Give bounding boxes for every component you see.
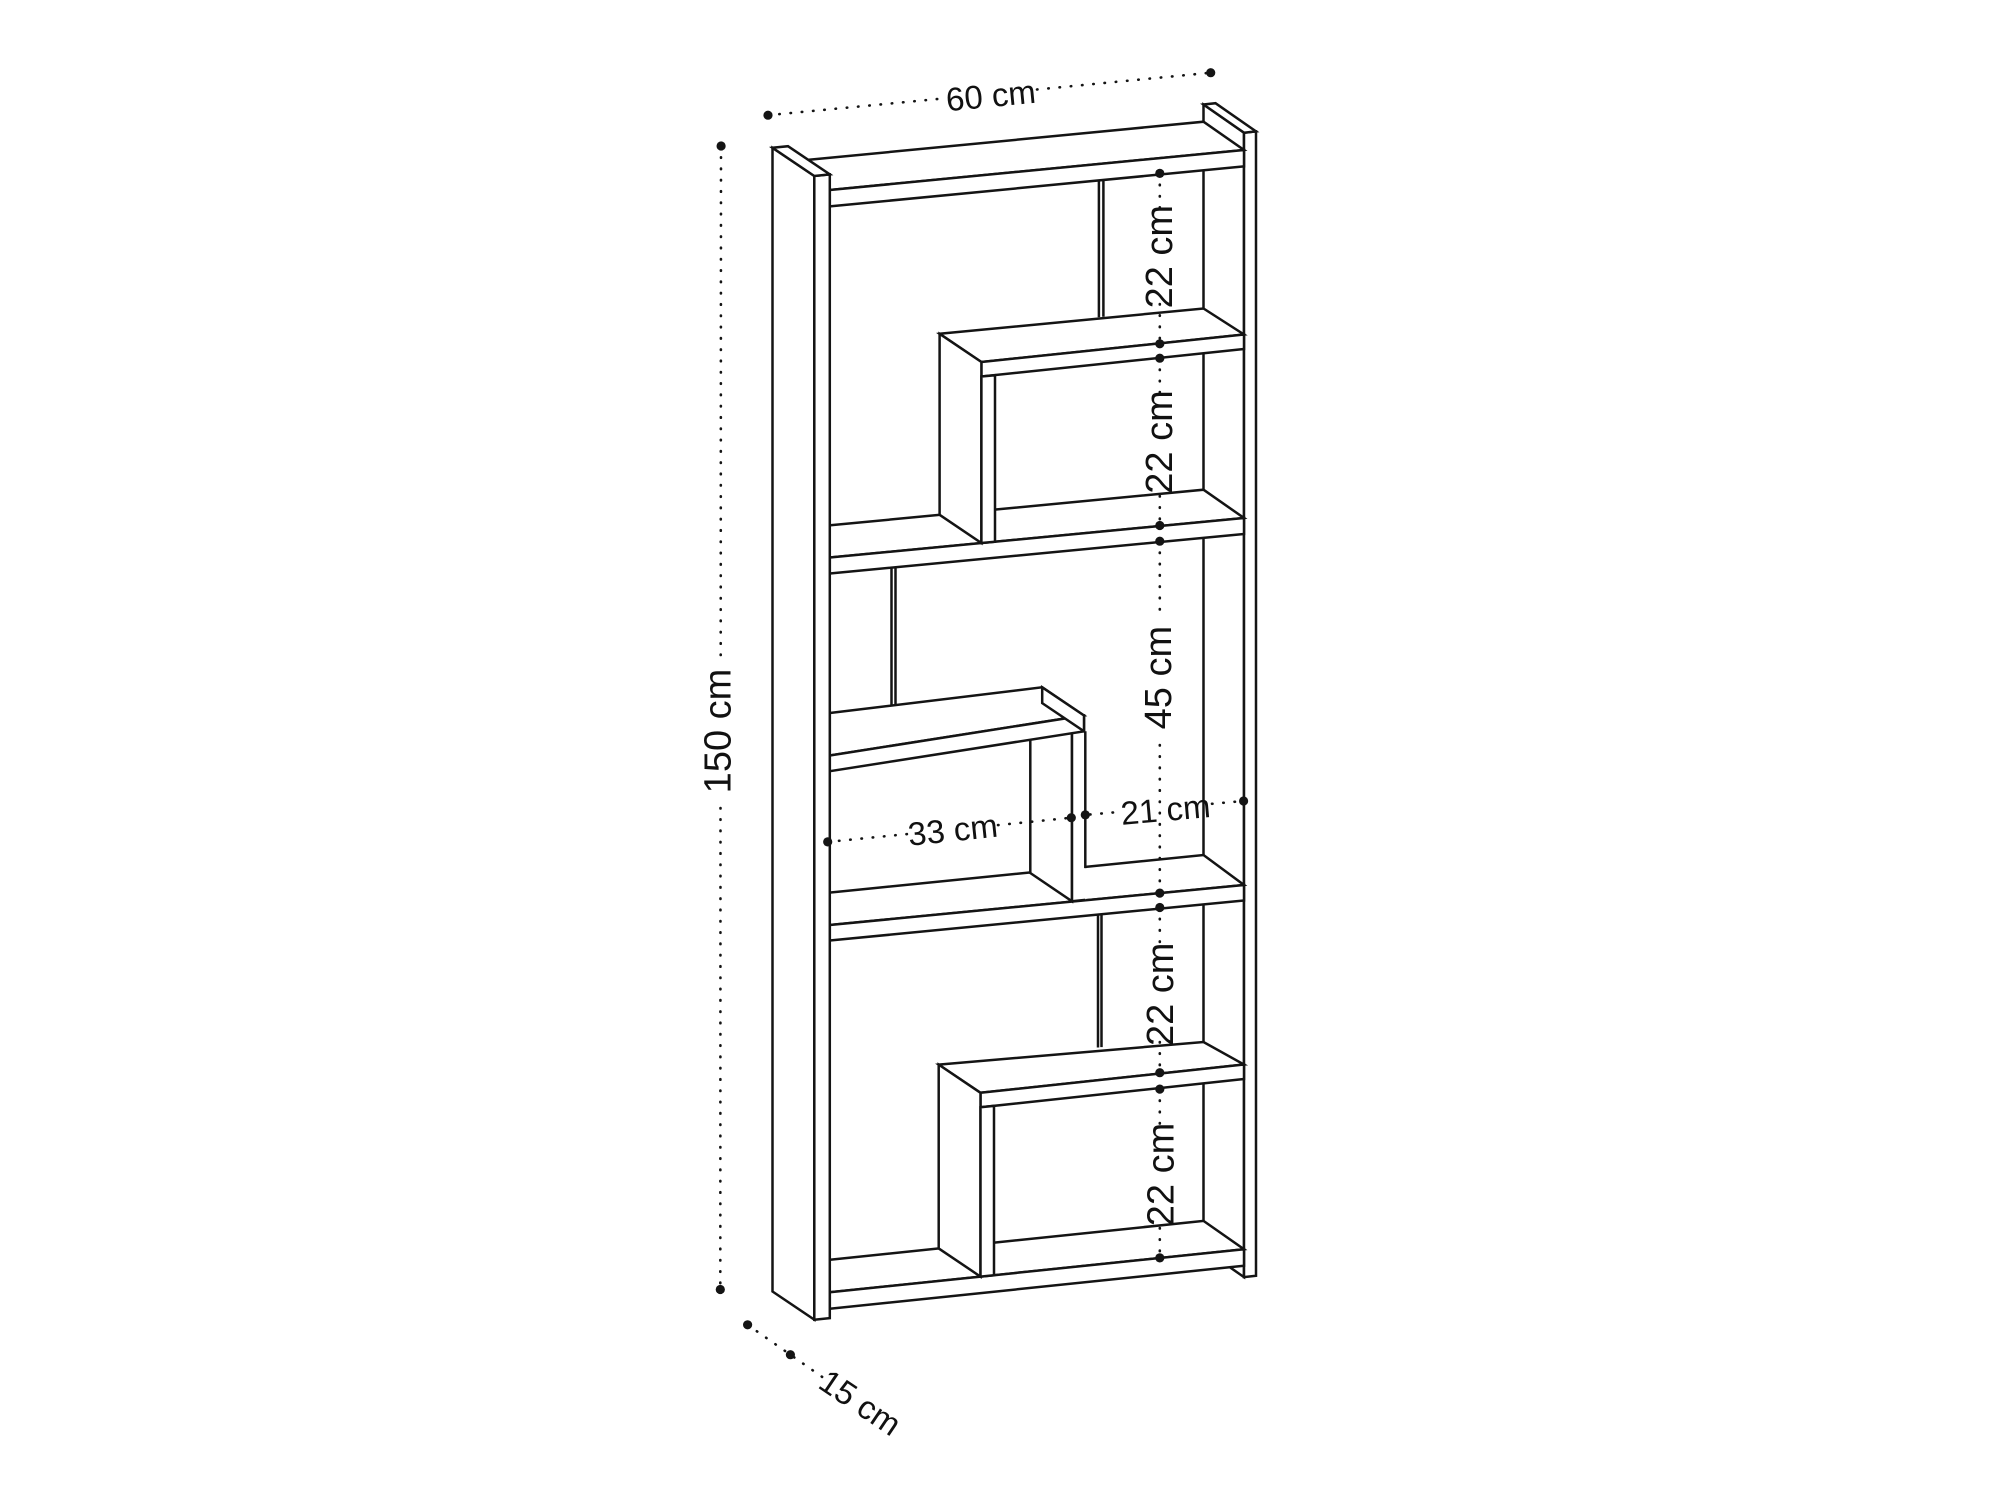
svg-text:21 cm: 21 cm [1119,787,1212,832]
svg-text:150 cm: 150 cm [698,669,740,794]
svg-text:45 cm: 45 cm [1138,626,1180,729]
svg-text:22 cm: 22 cm [1140,1123,1182,1226]
svg-text:22 cm: 22 cm [1140,943,1182,1046]
svg-text:33 cm: 33 cm [906,807,999,853]
svg-text:60 cm: 60 cm [944,73,1037,118]
svg-text:22 cm: 22 cm [1139,205,1181,308]
svg-text:15 cm: 15 cm [813,1362,908,1443]
svg-text:22 cm: 22 cm [1139,390,1181,493]
